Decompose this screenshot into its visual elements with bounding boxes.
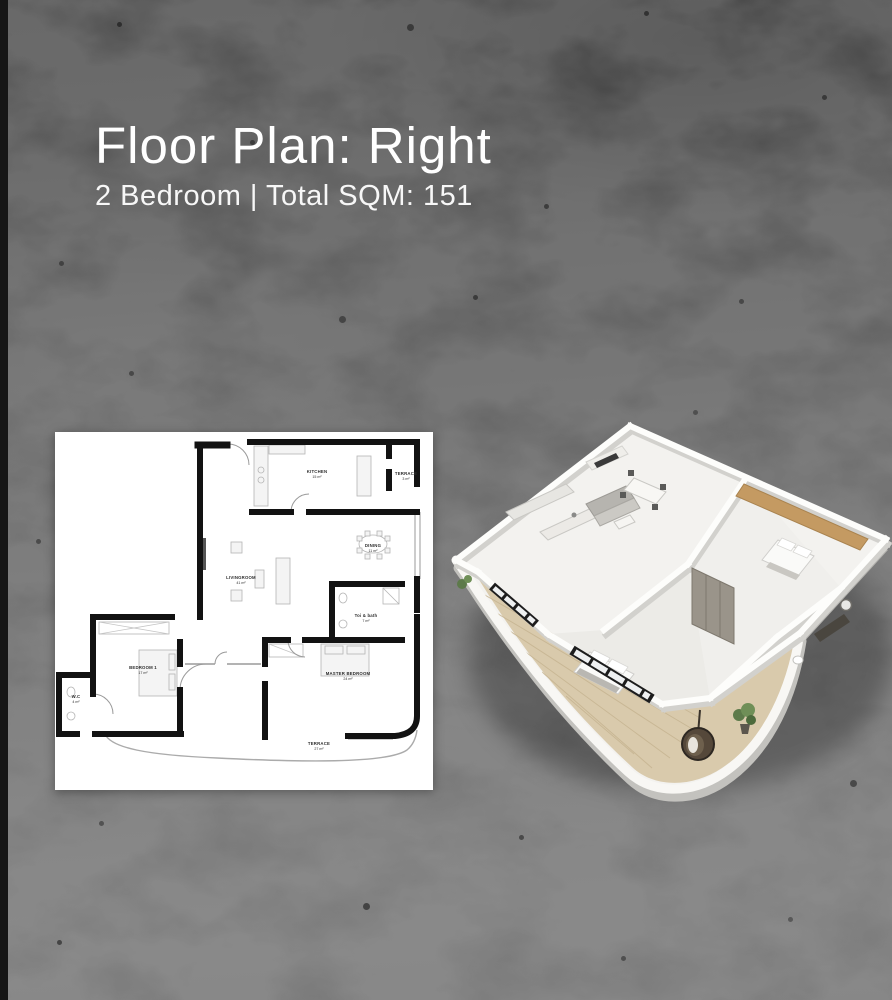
room-label-bedroom-1: BEDROOM 1 [129,665,157,670]
page-title: Floor Plan: Right [95,118,492,174]
floor-plan-2d-drawing: KITCHEN 15 m² TERRACE 3 m² DINING 11 m² … [55,432,433,790]
room-label-master-bedroom: MASTER BEDROOM [326,671,371,676]
room-label-terrace-top: TERRACE [395,471,417,476]
room-label-dining: DINING [365,543,382,548]
room-area-terrace-top: 3 m² [402,477,410,481]
header: Floor Plan: Right 2 Bedroom | Total SQM:… [95,118,492,216]
room-label-toi-bath: Toi & bath [355,613,378,618]
left-edge-strip [0,0,8,1000]
floor-plan-2d: KITCHEN 15 m² TERRACE 3 m² DINING 11 m² … [55,432,433,790]
room-area-kitchen: 15 m² [312,475,322,479]
room-area-bedroom-1: 17 m² [138,671,148,675]
room-area-toi-bath: 7 m² [362,619,370,623]
room-area-wc: 4 m² [72,700,80,704]
room-area-terrace-bottom: 27 m² [314,747,324,751]
page-subtitle: 2 Bedroom | Total SQM: 151 [95,178,492,216]
room-label-terrace-bottom: TERRACE [308,741,330,746]
room-label-kitchen: KITCHEN [307,469,328,474]
room-label-livingroom: LIVINGROOM [226,575,256,580]
floor-plan-3d-drawing [448,412,890,810]
slide-canvas: Floor Plan: Right 2 Bedroom | Total SQM:… [0,0,892,1000]
room-area-master-bedroom: 24 m² [343,677,353,681]
floor-plan-3d [448,412,890,810]
room-area-dining: 11 m² [369,549,379,553]
room-label-wc: W.C [72,694,81,699]
room-area-livingroom: 41 m² [236,581,246,585]
